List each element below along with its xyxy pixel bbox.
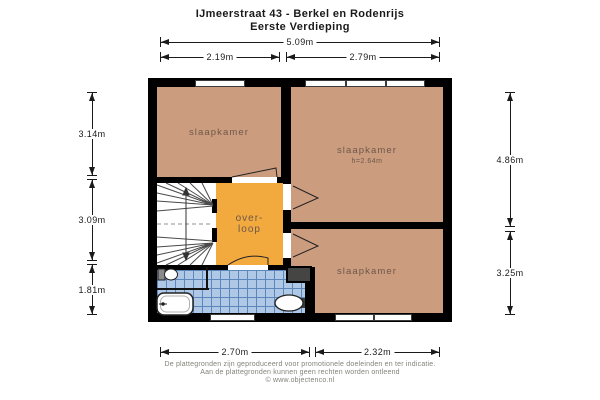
dim-tick xyxy=(505,314,515,315)
door-swing-bathroom xyxy=(228,256,268,265)
dim-left-bottom: 1.81m xyxy=(86,264,98,315)
dim-right-bottom: 3.25m xyxy=(504,231,516,315)
dim-arrow xyxy=(89,252,95,260)
dim-arrow xyxy=(89,167,95,175)
dim-label: 3.09m xyxy=(75,215,108,225)
dim-top-left: 2.19m xyxy=(160,51,280,63)
dim-tick xyxy=(87,175,97,176)
dim-top-total: 5.09m xyxy=(160,36,440,48)
dim-tick xyxy=(87,260,97,261)
dim-arrow xyxy=(431,54,439,60)
dim-arrow xyxy=(271,54,279,60)
dim-label: 2.79m xyxy=(346,52,379,62)
dim-label: 2.19m xyxy=(203,52,236,62)
dim-label: 1.81m xyxy=(75,285,108,295)
dim-arrow xyxy=(301,349,309,355)
floorplan-page: IJmeerstraat 43 - Berkel en Rodenrijs Ee… xyxy=(0,0,600,400)
plan-details xyxy=(148,78,452,322)
dim-arrow xyxy=(431,349,439,355)
dim-tick xyxy=(87,314,97,315)
page-subtitle: Eerste Verdieping xyxy=(0,21,600,33)
dim-arrow xyxy=(507,306,513,314)
dim-right-top: 4.86m xyxy=(504,92,516,227)
door-swings xyxy=(228,168,318,265)
dim-tick xyxy=(309,347,310,357)
dim-arrow xyxy=(89,306,95,314)
sink xyxy=(275,295,305,311)
bathtub xyxy=(157,293,193,315)
dim-tick xyxy=(505,226,515,227)
disclaimer-line-1: De plattegronden zijn geproduceerd voor … xyxy=(0,361,600,369)
dim-left-top: 3.14m xyxy=(86,92,98,176)
floorplan: slaapkamer slaapkamer h=2.64m slaapkamer… xyxy=(148,78,452,322)
dim-label: 3.14m xyxy=(75,129,108,139)
dim-arrow xyxy=(431,39,439,45)
dim-label: 2.70m xyxy=(218,347,251,357)
dim-tick xyxy=(439,347,440,357)
door-swing-bedroom-top-left xyxy=(232,168,277,177)
dim-tick xyxy=(279,52,280,62)
copyright-line: © www.objectenco.nl xyxy=(0,377,600,385)
dim-label: 3.25m xyxy=(493,268,526,278)
dim-label: 5.09m xyxy=(283,37,316,47)
dim-top-right: 2.79m xyxy=(286,51,440,63)
page-title: IJmeerstraat 43 - Berkel en Rodenrijs xyxy=(0,8,600,20)
door-swing-bedroom-top-right xyxy=(293,186,318,209)
dim-label: 4.86m xyxy=(493,155,526,165)
dim-tick xyxy=(439,37,440,47)
dim-bottom-left: 2.70m xyxy=(160,346,310,358)
dim-bottom-right: 2.32m xyxy=(315,346,440,358)
door-swing-bedroom-bottom-right xyxy=(293,234,318,257)
toilet xyxy=(158,269,178,280)
dim-label: 2.32m xyxy=(361,347,394,357)
disclaimer-line-2: Aan de plattegronden kunnen geen rechten… xyxy=(0,369,600,377)
dim-tick xyxy=(439,52,440,62)
dim-arrow xyxy=(507,218,513,226)
dim-left-mid: 3.09m xyxy=(86,179,98,261)
